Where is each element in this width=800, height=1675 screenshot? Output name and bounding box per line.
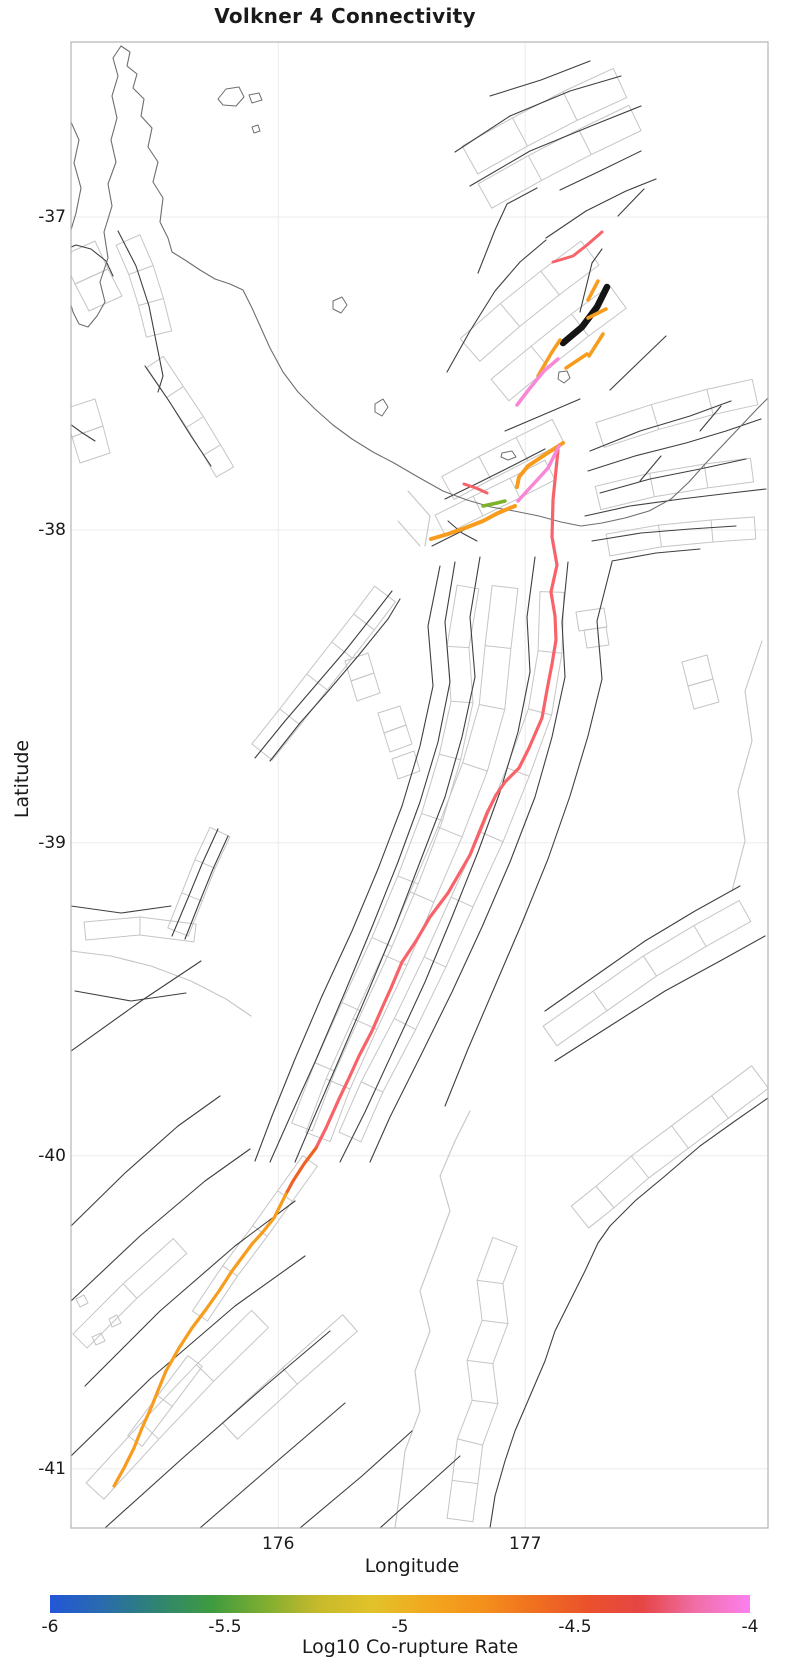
fault-ladder-rail [188,837,230,936]
fault-ladder-rail [589,1088,769,1228]
colorbar-tick-label: -4.5 [540,1617,610,1637]
fault-ladder-rung [493,1237,517,1246]
fault-ladder-rung [643,956,656,976]
fault-trace [592,526,736,541]
fault-ladder-rung [463,763,488,771]
fault-ladder-rung [252,1310,269,1327]
y-tick-label: -40 [4,1146,66,1166]
fault-ladder-rail [442,419,552,476]
fault-ladder-rung [672,1126,689,1148]
fault-ladder-rung [739,901,751,922]
fault-ladder-rail [557,921,751,1045]
fault-trace [270,562,455,1162]
fault-ladder-rung [563,92,577,121]
fault-patch [392,751,420,779]
fault-ladder-rail [447,1237,493,1518]
fault-ladder-rail [252,586,375,744]
plot-border [71,42,768,1528]
fault-ladder-rung [196,1365,213,1382]
fault-ladder-rung [84,922,86,940]
fault-ladder-rung [478,184,492,208]
fault-ladder-rail [292,585,457,1123]
fault-ladder-rail [237,1331,357,1439]
fault-ladder-rung [187,417,204,428]
fault-patch [384,725,412,752]
fault-ladder-rung [479,456,491,479]
fault-ladder-rung [650,473,655,497]
fault-ladder-rung [343,1315,358,1331]
colorbar-gradient [50,1595,750,1613]
fault-trace [612,549,700,561]
rupture-trace [316,450,558,1148]
fault-ladder-rung [332,642,352,658]
fault-ladder-rung [491,379,509,401]
fault-ladder-rail [595,458,750,486]
fault-ladder-rung [750,458,753,482]
fault-ladder-rung [538,651,562,653]
fault-trace [600,459,746,493]
fault-ladder-rail [272,602,395,760]
fault-ladder-rung [307,674,328,690]
island-outline [333,297,347,313]
fault-ladder-rung [752,379,758,404]
fault-ladder-rung [452,1480,478,1483]
fault-ladder-rung [283,1368,298,1384]
fault-ladder-rung [73,1334,87,1348]
fault-trace [545,886,740,1011]
fault-ladder-rung [492,585,518,588]
fault-ladder-rung [543,1026,557,1046]
fault-ladder-rung [435,515,445,535]
y-tick-label: -38 [4,520,66,540]
fault-trace [200,1403,345,1528]
fault-ladder-rung [422,813,443,820]
x-tick-label: 176 [243,1534,313,1554]
fault-patch [64,399,103,437]
fault-ladder-rung [610,286,627,309]
rupture-trace [588,281,598,300]
fault-ladder-rung [629,105,641,130]
fault-ladder-rung [479,705,505,710]
fault-ladder-rail [193,1156,303,1311]
rupture-trace [483,501,505,506]
rupture-trace [286,1148,316,1194]
fault-ladder-rung [410,892,434,902]
island-outline [501,451,516,460]
fault-ladder-rail [509,308,626,401]
fault-ladder-rung [754,517,756,539]
fault-trace [588,419,761,471]
map-layers [62,42,768,1528]
fault-patch [378,706,406,733]
y-tick-label: -39 [4,833,66,853]
rupture-trace [566,354,587,368]
fault-ladder-rung [182,893,202,901]
fault-ladder-rung [447,646,469,647]
fault-trace [145,366,211,466]
fault-ladder-rail [73,1239,173,1334]
fault-ladder-rail [492,131,641,209]
rupture-trace [517,359,558,405]
fault-ladder-rung [472,1400,498,1403]
fault-trace [71,1149,250,1301]
fault-ladder-rail [207,1166,317,1321]
fault-trace [75,991,186,1001]
fault-ladder-rung [457,1439,482,1445]
fault-patch [75,269,122,311]
fault-ladder-rung [528,156,541,181]
island-outline [375,399,388,416]
fault-trace-light [732,641,762,891]
fault-ladder-rung [447,1518,473,1521]
rupture-trace [553,232,602,262]
coastline [100,46,768,526]
island-outline [218,87,244,106]
fault-ladder-rung [516,437,528,460]
x-tick-label: 177 [490,1534,560,1554]
x-axis-label: Longitude [262,1555,562,1577]
fault-ladder-rail [140,235,172,331]
fault-ladder-rung [123,1284,137,1299]
fault-trace [62,245,113,276]
fault-ladder-rung [460,339,480,362]
fault-ladder-rung [146,331,171,337]
fault-ladder-rung [438,827,462,837]
fault-ladder-rail [604,405,758,448]
fault-trace-light [71,951,251,1016]
fault-trace [490,61,590,96]
colorbar-tick-label: -4 [715,1617,785,1637]
fault-trace [555,936,765,1061]
fault-ladder-rung [596,423,604,448]
fault-ladder-rung [595,486,601,509]
fault-patch [682,655,713,686]
fault-ladder-rung [467,1360,493,1363]
fault-ladder-rung [86,1483,104,1499]
fault-ladder-rung [203,445,220,455]
fault-ladder-rung [707,389,713,414]
fault-ladder-rail [460,241,581,339]
fault-trace [71,1096,220,1226]
fault-ladder-rung [116,235,140,245]
fault-ladder-rung [581,241,599,265]
fault-trace [185,836,228,939]
fault-ladder-rung [462,146,478,174]
colorbar-tick-label: -5 [365,1617,435,1637]
figure: Volkner 4 Connectivity Latitude -37-38-3… [0,0,800,1675]
map-canvas [0,0,800,1675]
fault-ladder-rail [86,1310,251,1482]
fault-ladder-rung [528,709,551,715]
fault-trace [445,449,545,499]
fault-ladder-rail [478,105,629,183]
fault-ladder-rail [606,517,754,534]
fault-ladder-rail [473,1247,517,1522]
fault-ladder-rung [280,709,300,725]
fault-ladder-rung [451,897,473,907]
fault-ladder-rung [138,298,163,305]
y-tick-label: -41 [4,1459,66,1479]
fault-ladder-rail [462,68,613,146]
fault-trace [478,188,537,273]
fault-ladder-rung [552,419,564,442]
fault-trace [105,1331,330,1528]
fault-ladder-rung [477,1280,503,1283]
fault-ladder-rung [306,1132,330,1141]
island-outline [249,93,262,103]
fault-patch [76,1295,88,1307]
island-outline [252,125,260,133]
fault-ladder-rail [116,245,146,337]
coastline [71,122,81,230]
fault-ladder-rail [571,1066,751,1206]
fault-patch [688,679,719,709]
fault-ladder-rung [694,926,706,947]
y-tick-label: -37 [4,207,66,227]
fault-trace [590,401,731,451]
fault-ladder-rail [480,265,599,361]
fault-patch [92,1333,105,1345]
fault-ladder-rung [173,1239,186,1254]
chart-title: Volkner 4 Connectivity [0,4,690,28]
fault-ladder-rail [163,356,233,466]
fault-ladder-rung [168,928,188,936]
fault-ladder-rung [315,1063,335,1071]
fault-ladder-rung [195,860,215,869]
fault-ladder-rung [394,1019,415,1030]
fault-ladder-rung [339,1132,361,1142]
fault-ladder-rung [361,1082,383,1093]
fault-ladder-rung [593,991,607,1011]
fault-ladder-rung [659,525,662,547]
fault-ladder-rung [571,1206,588,1228]
fault-ladder-rail [445,480,555,535]
fault-ladder-rung [712,1096,729,1118]
fault-ladder-rung [216,467,233,477]
fault-trace-light [398,521,420,546]
fault-ladder-rung [485,646,511,649]
fault-ladder-rung [752,1066,769,1088]
fault-ladder-rung [210,827,230,836]
fault-ladder-rail [478,98,627,174]
fault-ladder-rung [500,304,519,327]
fault-trace [71,961,201,1051]
fault-ladder-rail [86,935,194,942]
fault-ladder-rail [312,589,479,1131]
fault-ladder-rung [631,1156,648,1178]
colorbar-label: Log10 Co-rupture Rate [260,1636,560,1658]
fault-ladder-rung [167,386,184,397]
fault-trace [66,421,95,441]
fault-ladder-rung [194,924,196,942]
fault-trace [560,151,641,190]
colorbar-tick-label: -6 [15,1617,85,1637]
fault-patch [72,426,110,463]
fault-trace [447,240,546,372]
fault-trace [546,179,656,238]
fault-trace [490,1098,768,1528]
fault-ladder-rung [129,265,153,274]
colorbar-tick-label: -5.5 [190,1617,260,1637]
fault-ladder-rail [543,901,739,1027]
fault-trace [610,336,666,390]
fault-trace-light [395,1111,470,1528]
fault-ladder-rung [223,1423,238,1439]
fault-trace [71,906,171,913]
fault-ladder-rail [596,379,752,422]
fault-ladder-rung [711,520,713,542]
fault-ladder-rung [482,1320,508,1323]
fault-ladder-rung [541,271,559,295]
fault-trace [255,591,392,758]
island-outline [558,371,570,383]
fault-ladder-rail [610,539,756,556]
fault-ladder-rung [606,534,610,556]
fault-ladder-rung [613,68,626,97]
fault-ladder-rung [579,129,592,154]
fault-trace-light [408,491,430,546]
fault-ladder-rail [104,1328,269,1500]
fault-trace [700,406,721,431]
fault-ladder-rung [596,1186,614,1208]
fault-trace [380,1456,460,1528]
fault-trace [300,1431,412,1528]
fault-trace [118,231,163,392]
fault-patch [351,673,380,701]
fault-patch [109,1315,121,1327]
rupture-trace [589,334,603,356]
